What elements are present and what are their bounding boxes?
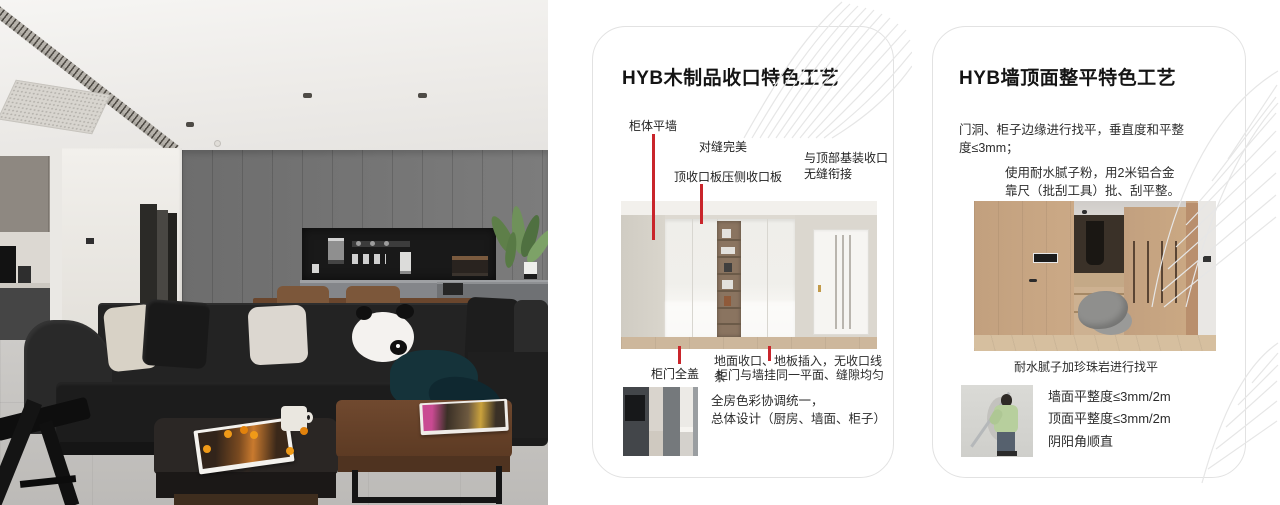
door-stripe xyxy=(835,235,837,329)
shelf xyxy=(717,256,741,258)
door-plate xyxy=(1203,256,1211,262)
wardrobe-handle-slit xyxy=(1175,241,1177,303)
kumquat xyxy=(224,430,232,438)
thumb-edge xyxy=(693,387,698,456)
magazine xyxy=(419,399,509,436)
smart-panel xyxy=(1033,253,1058,263)
callout-top-joint-seamless: 与顶部基装收口 无缝衔接 xyxy=(804,150,888,182)
door-handle xyxy=(818,285,821,292)
callout-top-trim-board: 顶收口板压侧收口板 xyxy=(674,169,782,185)
shelf-decor xyxy=(722,280,733,289)
kitchen-appliance xyxy=(18,266,31,284)
shelf xyxy=(717,307,741,309)
panda-eye xyxy=(396,344,400,348)
kumquat xyxy=(250,431,258,439)
render-wood-floor xyxy=(621,337,877,349)
kumquat xyxy=(240,426,248,434)
rail-knob xyxy=(370,241,375,246)
worker-thumbnail-image xyxy=(961,385,1033,457)
kumquat xyxy=(286,447,294,455)
kitchen-coffee-machine xyxy=(0,246,16,284)
shelf xyxy=(717,290,741,292)
card2-title: HYB墙顶面整平特色工艺 xyxy=(959,63,1176,90)
para-putty-ruler: 使用耐水腻子粉，用2米铝合金 靠尺（批刮工具）批、刮平整。 xyxy=(1005,164,1180,200)
spec-wall-flatness: 墙面平整度≤3mm/2m xyxy=(1048,390,1171,404)
callout-line xyxy=(768,346,771,361)
ceiling-spotlight xyxy=(186,122,194,127)
wood-floor xyxy=(974,335,1216,351)
shelf-decor xyxy=(721,247,735,254)
thumb-tv xyxy=(625,395,645,421)
panda-ear xyxy=(396,304,414,319)
door-stripe xyxy=(842,235,844,329)
spec-ceiling-flatness: 顶面平整度≤3mm/2m xyxy=(1048,412,1171,426)
summary-color-unified: 全房色彩协调统一， xyxy=(711,393,824,409)
wardrobe-render-image xyxy=(621,201,877,349)
render-left-wall xyxy=(621,215,665,337)
espresso-machine xyxy=(328,238,344,264)
door-handle xyxy=(1029,279,1037,282)
card1-title: HYB木制品收口特色工艺 xyxy=(622,63,839,90)
black-leather-pillow xyxy=(142,299,210,369)
wood-hallway-photo xyxy=(974,201,1216,351)
worker-pants xyxy=(997,432,1015,452)
ceiling-sensor xyxy=(214,140,221,147)
note-door-flush: 柜门与墙挂同一平面、缝隙均匀 xyxy=(716,368,884,384)
callout-cabinet-flush-wall: 柜体平墙 xyxy=(629,118,677,134)
kumquat xyxy=(203,445,211,453)
shelf-decor xyxy=(724,263,732,272)
mug xyxy=(312,264,319,273)
callout-line xyxy=(678,346,681,364)
ceiling-spot xyxy=(1082,210,1087,214)
mug-handle xyxy=(304,412,313,423)
light-switch xyxy=(86,238,94,244)
capsule-machine xyxy=(400,252,411,274)
stone-table-base xyxy=(174,494,318,505)
callout-perfect-seams: 对缝完美 xyxy=(699,139,747,155)
kitchen-opening-jamb xyxy=(50,148,62,346)
shelf xyxy=(717,273,741,275)
ceiling-spotlight xyxy=(418,93,427,98)
shelf xyxy=(717,239,741,241)
panda-ear xyxy=(356,306,372,320)
shelf xyxy=(717,323,741,325)
wardrobe-door-seam xyxy=(767,219,768,337)
wooden-speaker xyxy=(452,256,488,276)
ceiling-spotlight xyxy=(303,93,312,98)
shelf-decor xyxy=(722,229,731,238)
shelf-decor xyxy=(724,296,731,306)
magazine-cover xyxy=(422,401,505,431)
callout-line xyxy=(700,184,703,224)
caption-putty-perlite: 耐水腻子加珍珠岩进行找平 xyxy=(1014,358,1158,375)
wardrobe-door-seam xyxy=(692,219,693,337)
para-leveling-edges: 门洞、柜子边缘进行找平，垂直度和平整 度≤3mm； xyxy=(959,121,1184,157)
rail-knob xyxy=(384,241,389,246)
card-wall-ceiling-leveling: HYB墙顶面整平特色工艺 门洞、柜子边缘进行找平，垂直度和平整 度≤3mm； 使… xyxy=(932,26,1246,478)
kitchen-thumbnail-image xyxy=(623,387,698,456)
table-leg-bar xyxy=(352,497,502,503)
callout-line xyxy=(652,134,655,240)
callout-full-overlay-doors: 柜门全盖 xyxy=(651,366,699,382)
flatness-spec-list: 墙面平整度≤3mm/2m 顶面平整度≤3mm/2m 阴阳角顺直 xyxy=(1048,390,1171,457)
plant-vase xyxy=(524,262,537,279)
wardrobe-handle-slit xyxy=(1147,241,1149,303)
rail-knob xyxy=(356,241,361,246)
cup-set xyxy=(352,254,386,264)
white-pillow xyxy=(248,305,309,366)
kitchen-upper-cabinet xyxy=(0,156,50,232)
wardrobe-handle-slit xyxy=(1133,241,1135,303)
wardrobe-handle-slit xyxy=(1161,241,1163,303)
thumb-gray-cabinet xyxy=(663,387,680,456)
render-ceiling xyxy=(621,201,877,215)
hanging-clothes xyxy=(1086,221,1104,265)
living-room-photo xyxy=(0,0,548,505)
spec-corners-straight: 阴阳角顺直 xyxy=(1048,435,1171,449)
summary-overall-design: 总体设计（厨房、墙面、柜子） xyxy=(711,411,886,427)
door-stripe xyxy=(849,235,851,329)
render-door xyxy=(813,229,869,335)
worker-shoe xyxy=(997,451,1017,456)
wood-wall-door xyxy=(974,201,1074,335)
wood-table-front xyxy=(338,456,510,472)
door-jamb xyxy=(1186,203,1198,335)
card-wood-finishing: HYB木制品收口特色工艺 柜体平墙 对缝完美 顶收口板压侧收口板 与顶部基装收口… xyxy=(592,26,894,478)
kumquat xyxy=(300,427,308,435)
control-panel xyxy=(443,283,463,295)
white-wall xyxy=(1198,201,1216,351)
door-frame xyxy=(168,213,177,314)
